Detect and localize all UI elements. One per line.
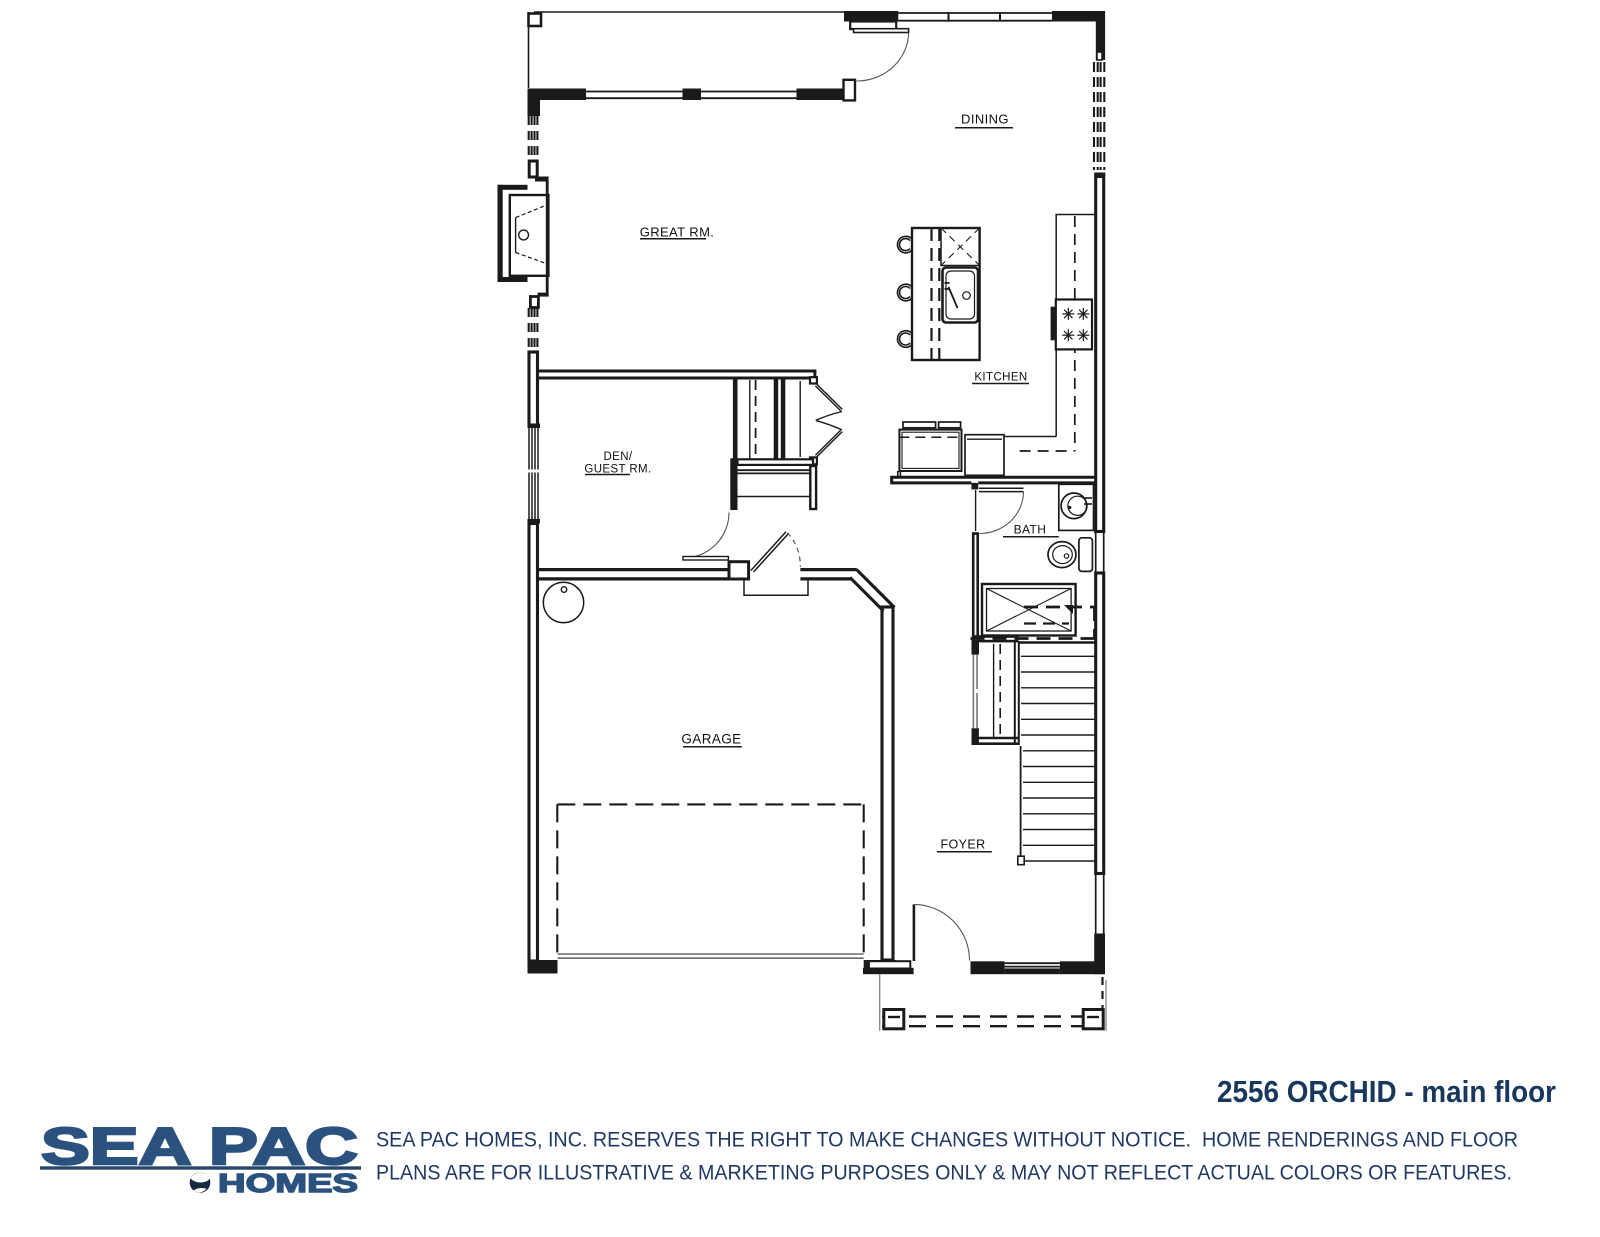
svg-text:DEN/: DEN/ (603, 451, 632, 463)
svg-text:BATH: BATH (1014, 522, 1047, 536)
svg-text:DINING: DINING (961, 112, 1009, 127)
svg-text:FOYER: FOYER (940, 837, 985, 851)
svg-text:GARAGE: GARAGE (681, 732, 741, 747)
svg-text:PLANS ARE FOR ILLUSTRATIVE & M: PLANS ARE FOR ILLUSTRATIVE & MARKETING P… (376, 1161, 1512, 1185)
svg-text:KITCHEN: KITCHEN (974, 371, 1027, 383)
svg-text:GREAT RM.: GREAT RM. (640, 224, 715, 239)
svg-text:GUEST RM.: GUEST RM. (584, 463, 651, 475)
svg-text:HOMES: HOMES (218, 1168, 358, 1198)
svg-text:2556 ORCHID - main floor: 2556 ORCHID - main floor (1217, 1074, 1556, 1109)
svg-text:SEA PAC HOMES, INC. RESERVES T: SEA PAC HOMES, INC. RESERVES THE RIGHT T… (376, 1128, 1518, 1152)
